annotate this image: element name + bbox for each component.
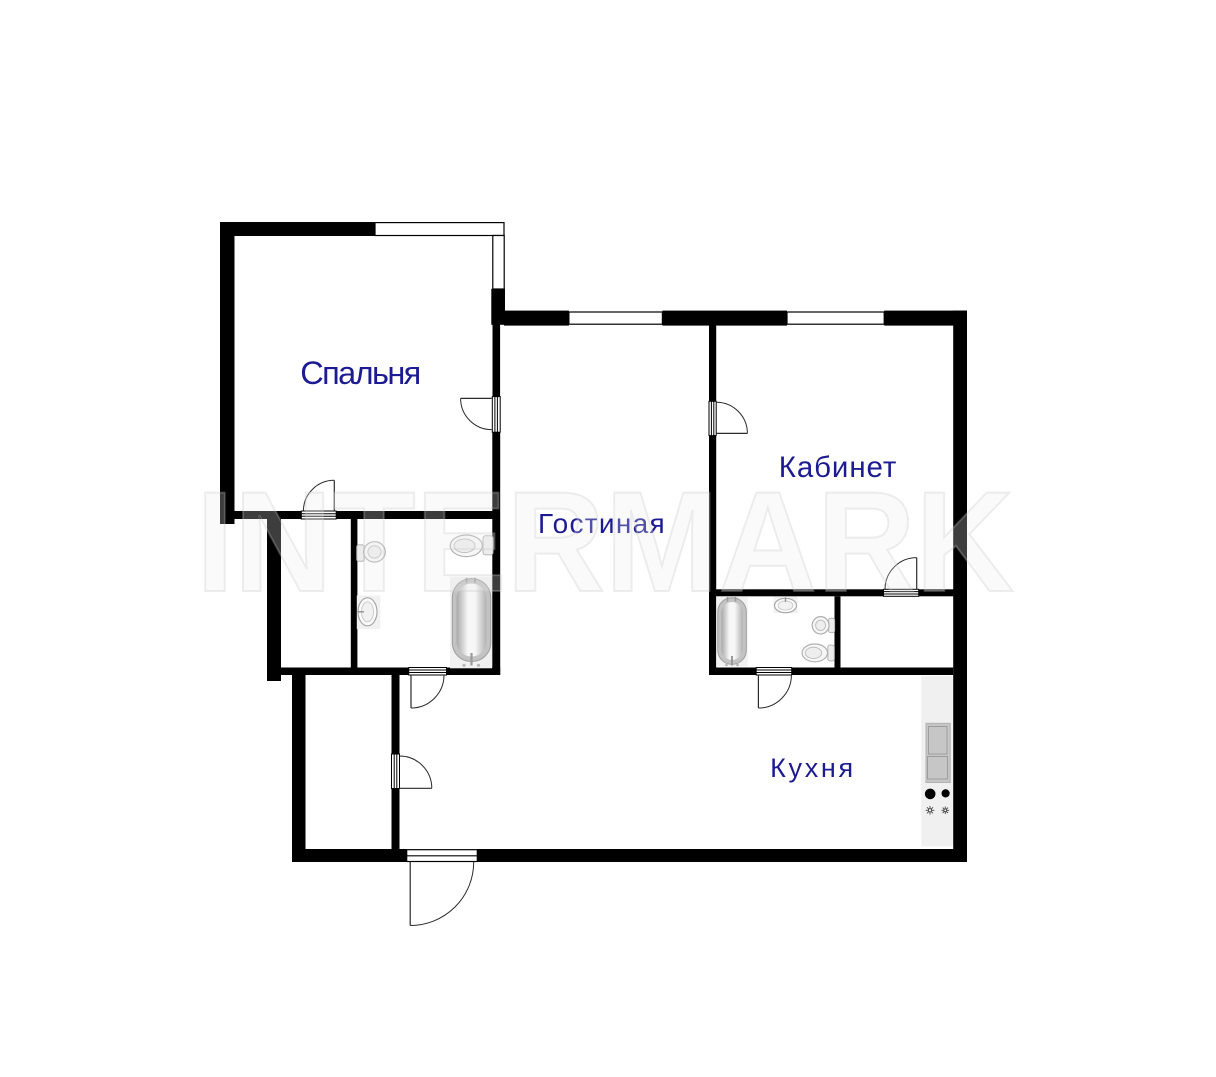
svg-text:INTERMARK: INTERMARK [196,463,1014,622]
svg-text:Кухня: Кухня [770,753,856,783]
svg-text:Спальня: Спальня [300,355,419,391]
